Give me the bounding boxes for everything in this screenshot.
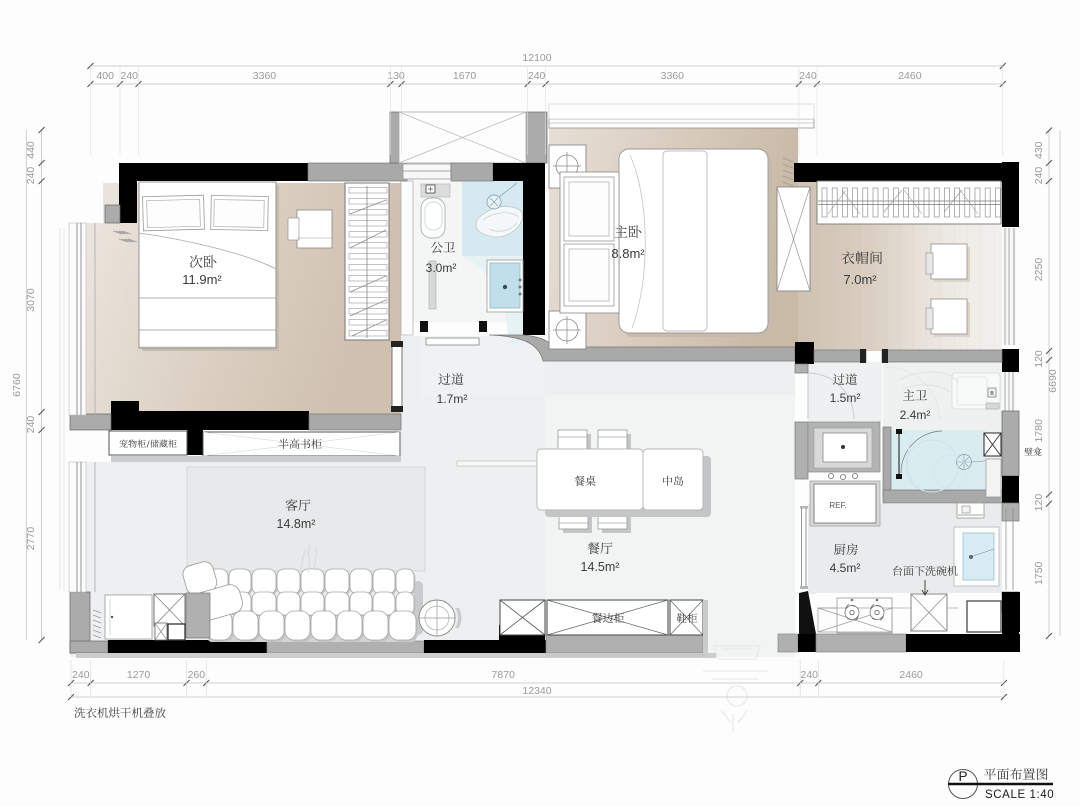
- svg-text:120: 120: [1033, 494, 1045, 512]
- svg-text:2770: 2770: [25, 527, 37, 551]
- svg-text:240: 240: [1033, 167, 1045, 185]
- svg-text:SCALE 1:40: SCALE 1:40: [985, 789, 1054, 801]
- svg-text:1.7m²: 1.7m²: [437, 392, 468, 406]
- svg-text:14.8m²: 14.8m²: [277, 517, 316, 531]
- svg-text:130: 130: [387, 70, 405, 82]
- svg-text:1670: 1670: [453, 70, 477, 82]
- svg-text:P: P: [958, 769, 967, 784]
- svg-text:240: 240: [25, 416, 37, 434]
- svg-text:2.4m²: 2.4m²: [900, 408, 931, 422]
- svg-text:3360: 3360: [661, 70, 685, 82]
- svg-text:8.8m²: 8.8m²: [611, 246, 645, 261]
- svg-text:440: 440: [25, 141, 37, 159]
- svg-text:12340: 12340: [522, 685, 551, 697]
- svg-text:3.0m²: 3.0m²: [426, 261, 457, 275]
- svg-text:REF.: REF.: [829, 501, 846, 510]
- svg-text:2250: 2250: [1033, 258, 1045, 282]
- svg-text:3070: 3070: [25, 288, 37, 312]
- svg-text:430: 430: [1033, 141, 1045, 159]
- svg-text:240: 240: [799, 70, 817, 82]
- svg-text:240: 240: [25, 167, 37, 185]
- svg-text:12100: 12100: [522, 52, 551, 64]
- svg-text:2460: 2460: [899, 669, 923, 681]
- svg-text:120: 120: [1033, 350, 1045, 368]
- svg-text:240: 240: [72, 669, 90, 681]
- svg-text:1780: 1780: [1033, 419, 1045, 443]
- svg-text:1.5m²: 1.5m²: [830, 391, 861, 405]
- svg-text:400: 400: [96, 70, 114, 82]
- svg-text:2460: 2460: [898, 70, 922, 82]
- svg-text:240: 240: [800, 669, 818, 681]
- svg-text:260: 260: [188, 669, 206, 681]
- svg-text:11.9m²: 11.9m²: [182, 272, 222, 287]
- svg-text:1270: 1270: [127, 669, 151, 681]
- svg-text:7870: 7870: [492, 669, 516, 681]
- svg-text:6760: 6760: [11, 373, 23, 397]
- svg-text:6690: 6690: [1047, 369, 1059, 393]
- svg-text:240: 240: [528, 70, 546, 82]
- svg-text:1750: 1750: [1033, 561, 1045, 585]
- svg-text:14.5m²: 14.5m²: [581, 560, 620, 574]
- svg-text:7.0m²: 7.0m²: [843, 272, 877, 287]
- svg-text:240: 240: [120, 70, 138, 82]
- svg-text:4.5m²: 4.5m²: [830, 561, 861, 575]
- svg-text:3360: 3360: [253, 70, 277, 82]
